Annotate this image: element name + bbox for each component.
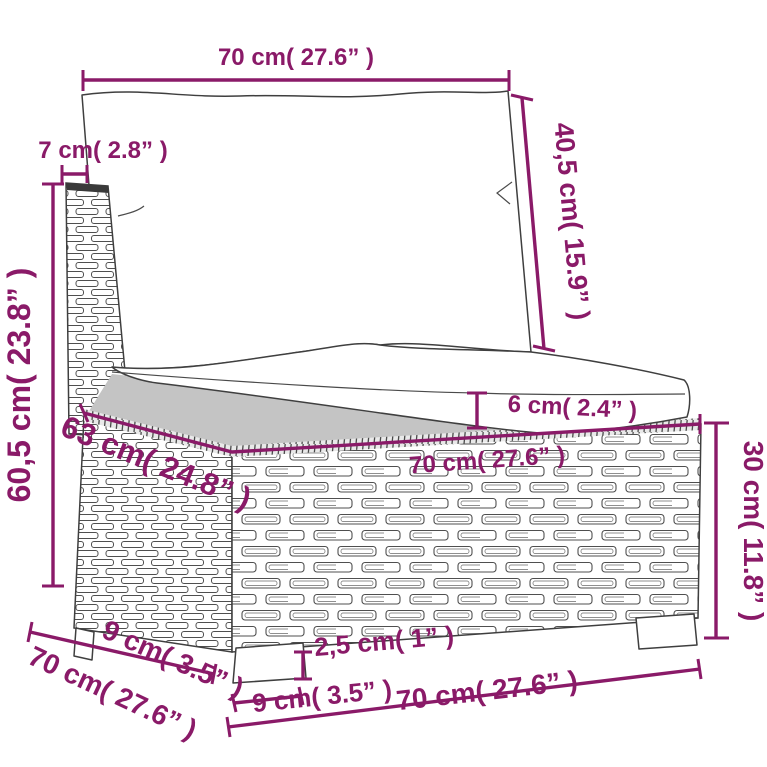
dim-overall-height: 60,5 cm( 23.8” ) [1,184,64,586]
dim-top-width: 70 cm( 27.6” ) [83,44,509,91]
diagram-canvas: 70 cm( 27.6” ) 7 cm( 2.8” ) 60,5 cm( 23.… [0,0,767,767]
dim-top-width-label: 70 cm( 27.6” ) [218,44,374,71]
dim-overall-height-label: 60,5 cm( 23.8” ) [1,268,37,503]
sofa-sketch [66,91,701,683]
dim-base-height-label: 30 cm( 11.8” ) [738,441,767,622]
dim-back-cushion-height-label: 40,5 cm( 15.9” ) [548,121,595,321]
dim-base-height: 30 cm( 11.8” ) [704,423,767,638]
dim-back-thickness-label: 7 cm( 2.8” ) [38,137,167,164]
front-right-leg [636,614,697,649]
dimension-diagram: 70 cm( 27.6” ) 7 cm( 2.8” ) 60,5 cm( 23.… [0,0,767,767]
back-cushion [82,91,531,369]
dim-bottom-width-label: 70 cm( 27.6” ) [395,665,579,716]
